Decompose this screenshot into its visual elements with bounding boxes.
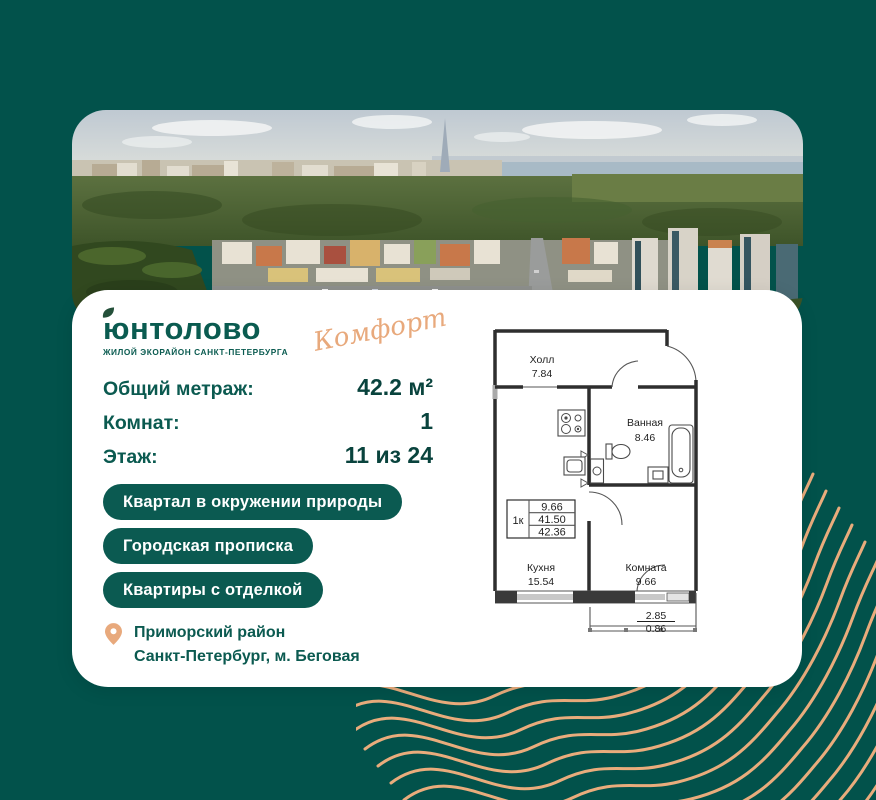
hall-label: Холл	[530, 354, 555, 366]
area-base: 41.50	[538, 514, 566, 526]
location-pin-icon	[105, 623, 122, 645]
location-district: Приморский район	[134, 621, 360, 645]
yuntolovo-logo: юнтолово ЖИЛОЙ ЭКОРАЙОН САНКТ-ПЕТЕРБУРГА…	[103, 314, 423, 357]
balcony-area-reduced: 0.86	[646, 623, 667, 635]
room-label: Комната	[625, 562, 666, 574]
feature-pill-finishing[interactable]: Квартиры с отделкой	[103, 572, 323, 608]
stat-value: 11 из 24	[345, 442, 433, 469]
stat-row-rooms: Комнат: 1	[103, 408, 433, 442]
floor-plan: 1к 9.66 41.50 42.36 Холл 7.84 Ванная 8.4…	[485, 325, 715, 637]
area-total: 42.36	[538, 527, 566, 539]
listing-card: юнтолово ЖИЛОЙ ЭКОРАЙОН САНКТ-ПЕТЕРБУРГА…	[72, 290, 802, 687]
stats-block: Общий метраж: 42.2 м² Комнат: 1 Этаж: 11…	[103, 374, 433, 476]
feature-pill-nature[interactable]: Квартал в окружении природы	[103, 484, 402, 520]
page-background: юнтолово ЖИЛОЙ ЭКОРАЙОН САНКТ-ПЕТЕРБУРГА…	[0, 0, 876, 800]
logo-subtitle: ЖИЛОЙ ЭКОРАЙОН САНКТ-ПЕТЕРБУРГА	[103, 347, 423, 357]
room-area: 9.66	[636, 576, 657, 588]
leaf-icon	[102, 307, 115, 319]
stat-label: Общий метраж:	[103, 378, 254, 401]
location-city-metro: Санкт-Петербург, м. Беговая	[134, 645, 360, 669]
stat-row-floor: Этаж: 11 из 24	[103, 442, 433, 476]
stat-label: Этаж:	[103, 446, 158, 469]
balcony-area-full: 2.85	[646, 610, 667, 622]
feature-pills: Квартал в окружении природы Городская пр…	[103, 484, 402, 608]
stat-label: Комнат:	[103, 412, 180, 435]
bath-label: Ванная	[627, 417, 663, 429]
unit-type: 1к	[513, 515, 524, 527]
area-living: 9.66	[541, 502, 562, 514]
stat-row-total-area: Общий метраж: 42.2 м²	[103, 374, 433, 408]
hall-area: 7.84	[532, 368, 553, 380]
feature-pill-registration[interactable]: Городская прописка	[103, 528, 313, 564]
stat-value: 1	[420, 408, 433, 435]
kitchen-label: Кухня	[527, 562, 555, 574]
stat-value: 42.2 м²	[357, 374, 433, 401]
location-block: Приморский район Санкт-Петербург, м. Бег…	[105, 621, 360, 669]
kitchen-area: 15.54	[528, 576, 554, 588]
bath-area: 8.46	[635, 432, 656, 444]
